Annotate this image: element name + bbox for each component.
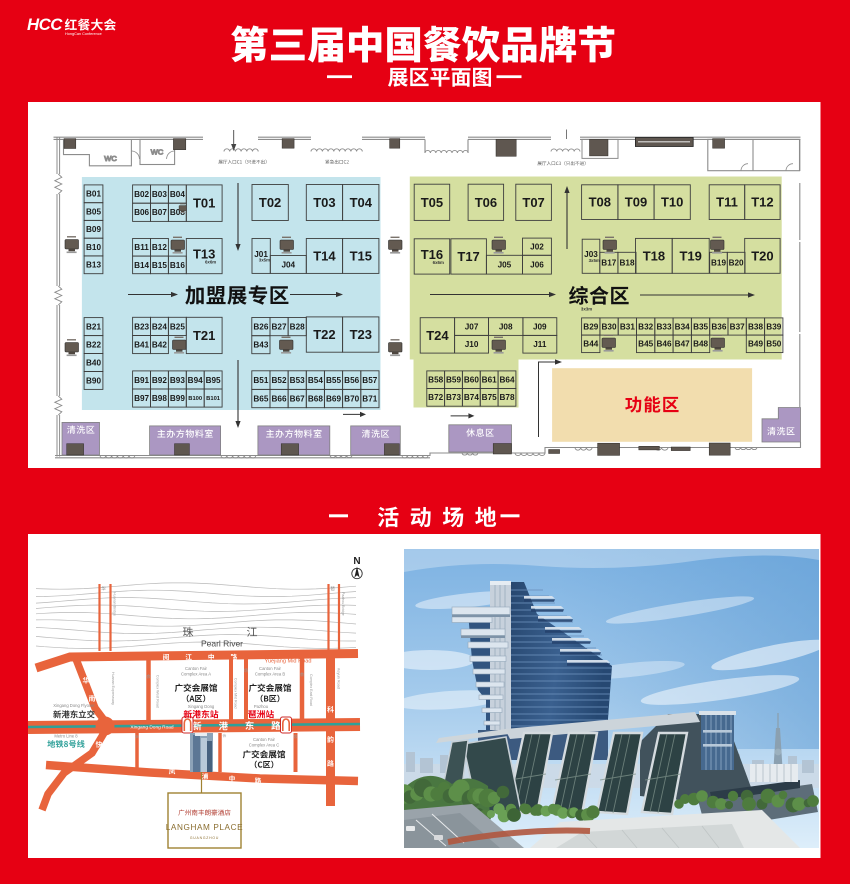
svg-text:B46: B46 bbox=[656, 340, 671, 349]
svg-text:HCC: HCC bbox=[27, 15, 63, 34]
svg-text:T01: T01 bbox=[193, 196, 215, 211]
svg-text:6x6m: 6x6m bbox=[205, 260, 216, 265]
svg-text:T11: T11 bbox=[716, 195, 738, 210]
svg-text:T14: T14 bbox=[313, 249, 336, 264]
svg-text:B70: B70 bbox=[344, 394, 359, 403]
svg-text:T06: T06 bbox=[475, 195, 497, 210]
svg-text:B98: B98 bbox=[152, 394, 167, 403]
svg-text:Canton Fair: Canton Fair bbox=[259, 666, 281, 671]
svg-text:B05: B05 bbox=[86, 207, 101, 216]
svg-text:B18: B18 bbox=[619, 259, 634, 268]
svg-text:T07: T07 bbox=[522, 195, 544, 210]
svg-text:J08: J08 bbox=[499, 322, 513, 331]
svg-text:B37: B37 bbox=[730, 322, 745, 331]
svg-text:N: N bbox=[353, 556, 360, 567]
svg-text:B38: B38 bbox=[748, 322, 763, 331]
svg-text:B42: B42 bbox=[152, 340, 167, 349]
svg-text:B24: B24 bbox=[152, 322, 167, 331]
svg-text:B92: B92 bbox=[152, 376, 167, 385]
svg-text:B01: B01 bbox=[86, 190, 101, 199]
svg-text:B51: B51 bbox=[253, 376, 268, 385]
svg-text:B03: B03 bbox=[152, 190, 167, 199]
svg-text:Complex Area B: Complex Area B bbox=[255, 672, 285, 677]
svg-text:Canton Fair: Canton Fair bbox=[185, 666, 207, 671]
svg-text:T08: T08 bbox=[589, 195, 611, 210]
svg-text:B73: B73 bbox=[446, 393, 461, 402]
svg-text:T03: T03 bbox=[313, 195, 335, 210]
svg-text:J04: J04 bbox=[281, 260, 295, 269]
svg-text:T17: T17 bbox=[457, 249, 479, 264]
svg-text:Xingang Dong: Xingang Dong bbox=[188, 704, 215, 709]
svg-text:B93: B93 bbox=[170, 376, 185, 385]
svg-text:B47: B47 bbox=[675, 340, 690, 349]
svg-text:B11: B11 bbox=[134, 243, 149, 252]
svg-text:B64: B64 bbox=[499, 376, 514, 385]
svg-text:B17: B17 bbox=[601, 259, 616, 268]
svg-text:B32: B32 bbox=[638, 322, 653, 331]
svg-text:B49: B49 bbox=[748, 340, 763, 349]
svg-text:B16: B16 bbox=[170, 261, 185, 270]
svg-text:B50: B50 bbox=[766, 340, 781, 349]
svg-text:Huanan Bridge: Huanan Bridge bbox=[113, 592, 117, 616]
svg-text:Pazhou Bridge: Pazhou Bridge bbox=[341, 592, 345, 616]
svg-text:T04: T04 bbox=[350, 195, 373, 210]
svg-text:T09: T09 bbox=[625, 195, 647, 210]
svg-text:WC: WC bbox=[104, 154, 117, 163]
svg-text:T02: T02 bbox=[259, 195, 281, 210]
svg-text:Complex Area A: Complex Area A bbox=[181, 672, 211, 677]
svg-text:J07: J07 bbox=[465, 322, 479, 331]
svg-text:B55: B55 bbox=[326, 376, 341, 385]
svg-text:B57: B57 bbox=[362, 376, 377, 385]
svg-text:B94: B94 bbox=[188, 376, 203, 385]
svg-text:Xingang Dong Road: Xingang Dong Road bbox=[130, 725, 174, 731]
svg-text:B72: B72 bbox=[428, 393, 443, 402]
svg-text:B19: B19 bbox=[711, 259, 726, 268]
svg-text:Complex West Road: Complex West Road bbox=[156, 675, 160, 708]
svg-text:Huanan Expressway: Huanan Expressway bbox=[111, 672, 115, 705]
svg-text:B61: B61 bbox=[482, 376, 497, 385]
svg-text:J09: J09 bbox=[533, 322, 547, 331]
svg-text:Metro Line 8: Metro Line 8 bbox=[54, 734, 78, 739]
svg-text:T23: T23 bbox=[350, 327, 372, 342]
svg-text:B68: B68 bbox=[308, 394, 323, 403]
svg-text:B44: B44 bbox=[583, 340, 598, 349]
svg-text:T15: T15 bbox=[350, 249, 372, 264]
svg-text:B101: B101 bbox=[206, 396, 221, 402]
svg-text:T24: T24 bbox=[426, 328, 449, 343]
svg-text:WC: WC bbox=[151, 148, 164, 157]
svg-text:B53: B53 bbox=[290, 376, 305, 385]
svg-text:B78: B78 bbox=[499, 393, 514, 402]
svg-text:B45: B45 bbox=[638, 340, 653, 349]
svg-text:B58: B58 bbox=[428, 376, 443, 385]
svg-text:T10: T10 bbox=[661, 195, 683, 210]
svg-text:B13: B13 bbox=[86, 261, 101, 270]
svg-text:B23: B23 bbox=[134, 322, 149, 331]
svg-text:B14: B14 bbox=[134, 261, 149, 270]
svg-text:B99: B99 bbox=[170, 394, 185, 403]
svg-text:T22: T22 bbox=[313, 327, 335, 342]
svg-text:B97: B97 bbox=[134, 394, 149, 403]
svg-text:B36: B36 bbox=[711, 322, 726, 331]
svg-text:B09: B09 bbox=[86, 225, 101, 234]
svg-text:Pazhou: Pazhou bbox=[254, 704, 269, 709]
svg-text:B20: B20 bbox=[729, 259, 744, 268]
svg-text:B41: B41 bbox=[134, 340, 149, 349]
svg-text:T21: T21 bbox=[193, 328, 215, 343]
svg-text:T20: T20 bbox=[751, 248, 773, 263]
svg-text:Complex Mid Road: Complex Mid Road bbox=[234, 678, 238, 709]
svg-text:T12: T12 bbox=[751, 195, 773, 210]
svg-text:Pearl River: Pearl River bbox=[201, 639, 243, 649]
svg-text:6x6m: 6x6m bbox=[433, 260, 444, 265]
svg-text:3x5m: 3x5m bbox=[589, 258, 600, 263]
svg-text:B07: B07 bbox=[152, 208, 167, 217]
svg-text:B52: B52 bbox=[271, 376, 286, 385]
svg-text:B26: B26 bbox=[253, 323, 268, 332]
svg-text:B15: B15 bbox=[152, 261, 167, 270]
svg-text:B31: B31 bbox=[620, 322, 635, 331]
svg-text:B12: B12 bbox=[152, 243, 167, 252]
svg-text:B56: B56 bbox=[344, 376, 359, 385]
svg-text:GUANGZHOU: GUANGZHOU bbox=[190, 836, 219, 840]
svg-text:B75: B75 bbox=[482, 393, 497, 402]
svg-text:B06: B06 bbox=[134, 208, 149, 217]
svg-text:Yuejiang Mid Road: Yuejiang Mid Road bbox=[265, 659, 312, 665]
svg-text:J02: J02 bbox=[530, 243, 544, 252]
svg-text:B10: B10 bbox=[86, 243, 101, 252]
svg-text:T19: T19 bbox=[679, 248, 701, 263]
svg-text:B21: B21 bbox=[86, 323, 101, 332]
svg-text:B71: B71 bbox=[362, 394, 377, 403]
svg-text:LANGHAM PLACE: LANGHAM PLACE bbox=[166, 823, 243, 832]
svg-text:B02: B02 bbox=[134, 190, 149, 199]
svg-text:B67: B67 bbox=[290, 394, 305, 403]
svg-text:B48: B48 bbox=[693, 340, 708, 349]
svg-text:T18: T18 bbox=[643, 248, 665, 263]
svg-text:B22: B22 bbox=[86, 340, 101, 349]
svg-text:T05: T05 bbox=[421, 195, 443, 210]
svg-text:Canton Fair: Canton Fair bbox=[253, 737, 275, 742]
svg-text:B91: B91 bbox=[134, 376, 149, 385]
svg-text:J11: J11 bbox=[533, 340, 547, 349]
svg-text:B65: B65 bbox=[253, 394, 268, 403]
svg-text:Fengpu Mid Road: Fengpu Mid Road bbox=[282, 779, 326, 785]
svg-text:B43: B43 bbox=[253, 341, 268, 350]
svg-text:J10: J10 bbox=[465, 340, 479, 349]
svg-text:B100: B100 bbox=[188, 396, 202, 402]
svg-text:Complex Area C: Complex Area C bbox=[249, 743, 280, 748]
svg-text:B69: B69 bbox=[326, 394, 341, 403]
svg-text:B60: B60 bbox=[464, 376, 479, 385]
svg-text:B90: B90 bbox=[86, 376, 101, 385]
svg-text:Complex East Road: Complex East Road bbox=[309, 674, 313, 706]
svg-text:B54: B54 bbox=[308, 376, 323, 385]
svg-text:HongCan Conference: HongCan Conference bbox=[65, 32, 102, 36]
svg-text:B28: B28 bbox=[290, 323, 305, 332]
svg-text:B59: B59 bbox=[446, 376, 461, 385]
svg-text:J05: J05 bbox=[498, 261, 512, 270]
svg-text:B29: B29 bbox=[583, 322, 598, 331]
svg-text:Keyun Road: Keyun Road bbox=[337, 668, 341, 689]
svg-text:J06: J06 bbox=[530, 261, 544, 270]
svg-text:B30: B30 bbox=[601, 322, 616, 331]
svg-text:B27: B27 bbox=[271, 323, 286, 332]
svg-text:3x3m: 3x3m bbox=[581, 307, 592, 312]
svg-text:B04: B04 bbox=[170, 190, 185, 199]
svg-text:B33: B33 bbox=[656, 322, 671, 331]
svg-text:B95: B95 bbox=[206, 376, 221, 385]
svg-text:Xingang Dong Flyover: Xingang Dong Flyover bbox=[53, 703, 95, 708]
svg-text:B40: B40 bbox=[86, 358, 101, 367]
svg-text:B66: B66 bbox=[271, 394, 286, 403]
svg-text:B35: B35 bbox=[693, 322, 708, 331]
svg-text:B25: B25 bbox=[170, 322, 185, 331]
svg-text:3x5m: 3x5m bbox=[259, 258, 270, 263]
svg-text:B74: B74 bbox=[464, 393, 479, 402]
svg-text:B39: B39 bbox=[766, 322, 781, 331]
svg-text:B34: B34 bbox=[675, 322, 690, 331]
